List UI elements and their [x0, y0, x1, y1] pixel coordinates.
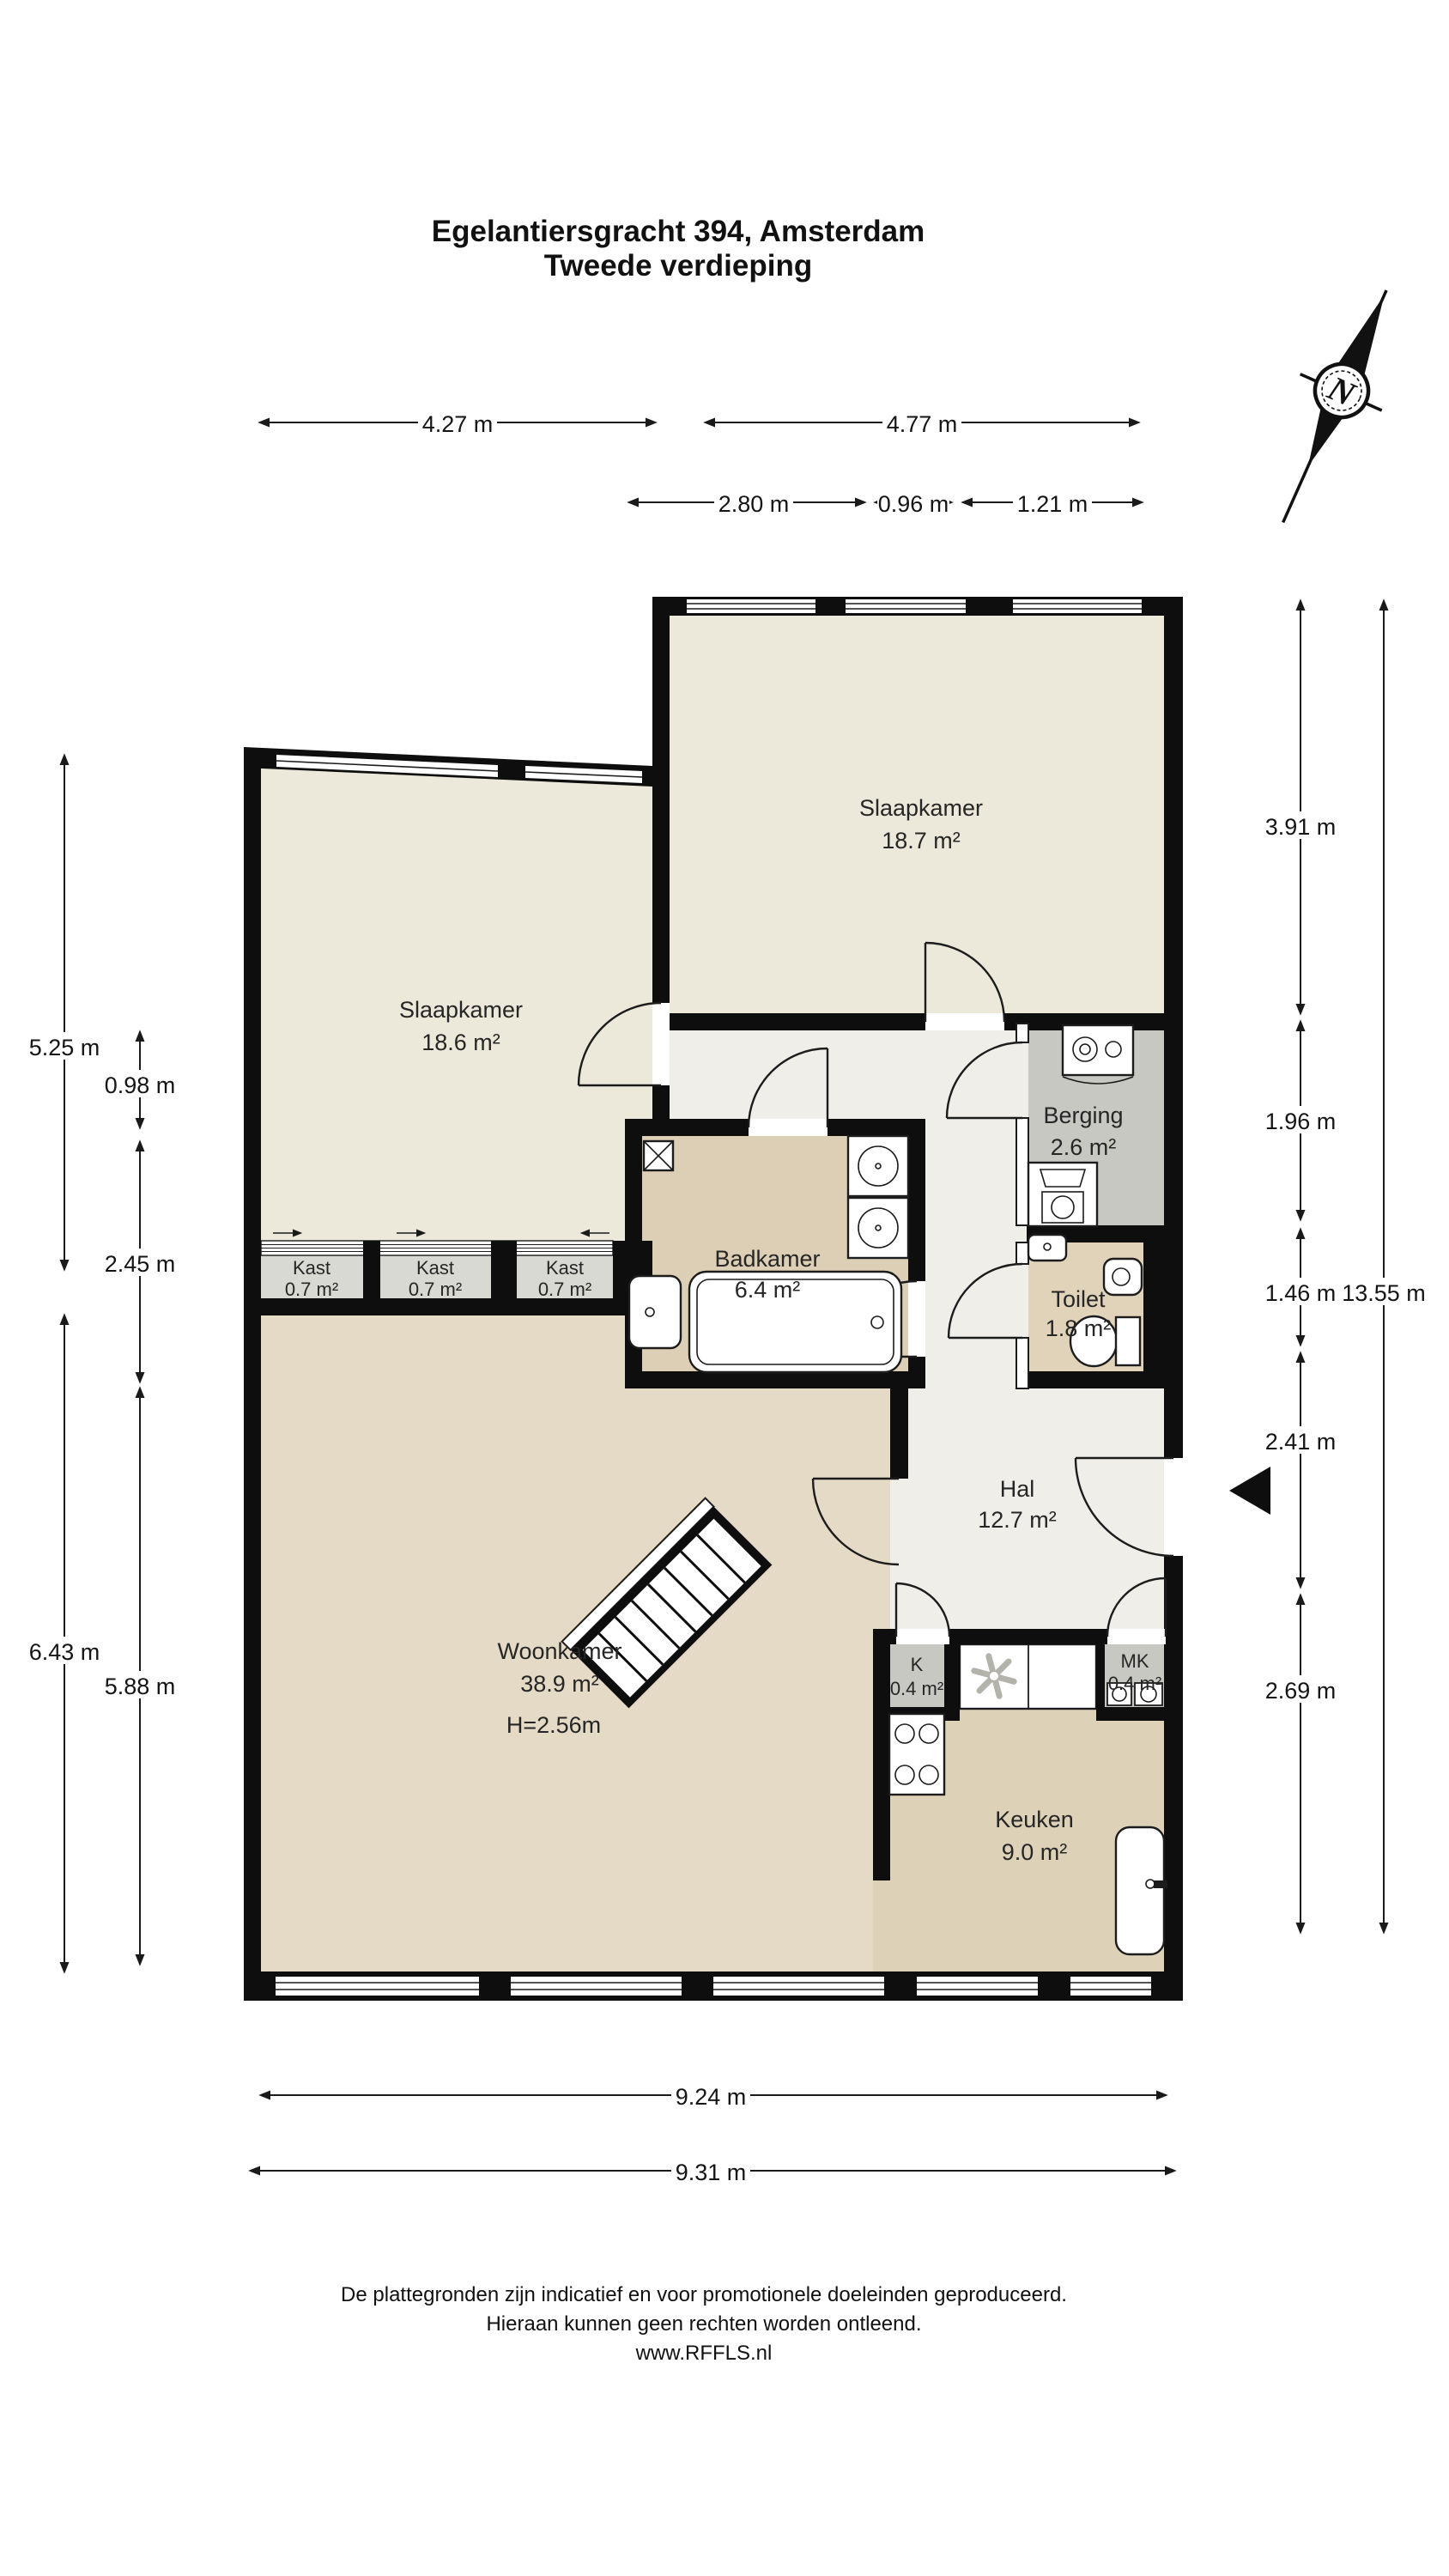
label-hal-area: 12.7 m²	[978, 1507, 1057, 1533]
label-mk-name: MK	[1121, 1650, 1149, 1672]
label-berging-name: Berging	[1043, 1103, 1123, 1128]
washbasin-icon	[629, 1276, 681, 1348]
dim-top-2: 4.77 m	[887, 411, 958, 437]
label-woonkamer-name: Woonkamer	[497, 1638, 621, 1664]
dim-left-inner-3: 5.88 m	[105, 1674, 176, 1699]
label-slaapkamer-right-name: Slaapkamer	[859, 795, 983, 821]
dim-right-outer: 13.55 m	[1342, 1280, 1426, 1306]
page-title-line1: Egelantiersgracht 394, Amsterdam	[432, 215, 925, 248]
label-slaapkamer-left-name: Slaapkamer	[399, 997, 523, 1023]
dim-top-inner-2: 0.96 m	[878, 491, 949, 517]
dim-right-inner-3: 1.46 m	[1265, 1280, 1337, 1306]
label-k-name: K	[911, 1654, 924, 1675]
dim-left-inner-1: 0.98 m	[105, 1072, 176, 1098]
label-woonkamer-area: 38.9 m²	[520, 1671, 599, 1697]
footer-disclaimer-line1: De plattegronden zijn indicatief en voor…	[341, 2283, 1067, 2306]
label-kast1-area: 0.7 m²	[285, 1279, 338, 1300]
label-badkamer-area: 6.4 m²	[735, 1277, 801, 1303]
label-kast2-name: Kast	[416, 1257, 454, 1279]
footer-website: www.RFFLS.nl	[635, 2342, 773, 2365]
dim-top-inner-1: 2.80 m	[718, 491, 790, 517]
sink-icon	[848, 1198, 908, 1258]
label-mk-area: 0.4 m²	[1108, 1673, 1161, 1694]
tap-icon	[1154, 1880, 1167, 1888]
berging-boiler-icon	[1063, 1025, 1133, 1084]
dim-left-inner-2: 2.45 m	[105, 1251, 176, 1277]
dim-top-inner-3: 1.21 m	[1017, 491, 1088, 517]
page-title-line2: Tweede verdieping	[544, 249, 813, 283]
label-kast3-name: Kast	[546, 1257, 584, 1279]
dim-bottom-2: 9.31 m	[676, 2160, 747, 2185]
floorplan-canvas: N 4.27 m 4.77 m 2.80 m 0.96 m 1.21 m 5.2…	[0, 0, 1449, 2576]
label-kast1-name: Kast	[293, 1257, 330, 1279]
dim-top-1: 4.27 m	[422, 411, 494, 437]
label-hal-name: Hal	[1000, 1476, 1035, 1502]
footer-disclaimer-line2: Hieraan kunnen geen rechten worden ontle…	[486, 2312, 921, 2336]
dim-right-inner-1: 3.91 m	[1265, 814, 1337, 840]
label-keuken-name: Keuken	[995, 1807, 1074, 1832]
kitchen-sink-icon	[1116, 1827, 1164, 1954]
label-badkamer-name: Badkamer	[714, 1246, 820, 1272]
dim-left-outer-2: 6.43 m	[29, 1639, 100, 1665]
label-toilet-area: 1.8 m²	[1046, 1315, 1112, 1341]
washing-machine-icon	[1028, 1163, 1097, 1226]
dim-left-outer-1: 5.25 m	[29, 1035, 100, 1060]
label-toilet-name: Toilet	[1051, 1286, 1106, 1312]
dim-right-inner-2: 1.96 m	[1265, 1109, 1337, 1134]
label-slaapkamer-left-area: 18.6 m²	[421, 1030, 500, 1055]
toilet-tank-icon	[1116, 1317, 1140, 1365]
dim-bottom-1: 9.24 m	[676, 2084, 747, 2110]
label-keuken-area: 9.0 m²	[1002, 1839, 1068, 1865]
label-kast2-area: 0.7 m²	[409, 1279, 462, 1300]
dim-right-inner-5: 2.69 m	[1265, 1678, 1337, 1704]
north-compass-icon: N	[1242, 272, 1427, 541]
label-slaapkamer-right-area: 18.7 m²	[882, 828, 961, 854]
label-woonkamer-height: H=2.56m	[506, 1712, 601, 1738]
dim-right-inner-4: 2.41 m	[1265, 1429, 1337, 1455]
entrance-arrow-icon	[1229, 1467, 1270, 1515]
label-berging-area: 2.6 m²	[1051, 1134, 1117, 1160]
sink-icon	[848, 1136, 908, 1196]
stove-icon	[889, 1714, 944, 1795]
label-k-area: 0.4 m²	[890, 1678, 943, 1699]
label-kast3-area: 0.7 m²	[538, 1279, 591, 1300]
